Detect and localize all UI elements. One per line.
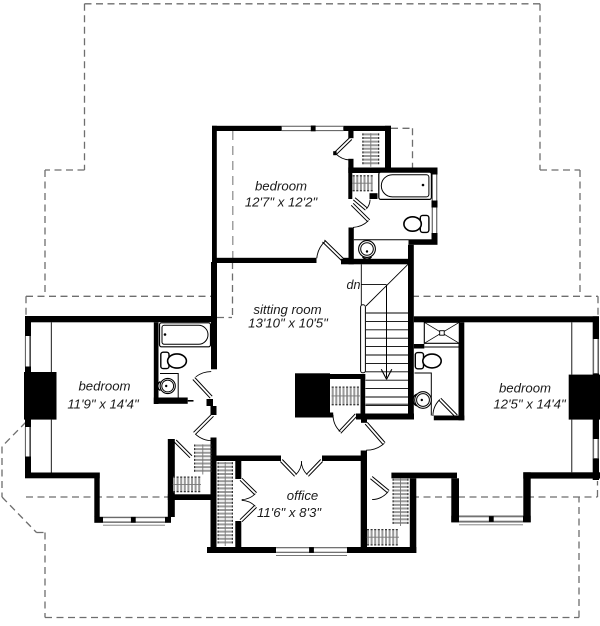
svg-text:bedroom: bedroom [78,379,130,394]
svg-text:11'9" x 14'4": 11'9" x 14'4" [67,397,140,412]
svg-text:12'5" x 14'4": 12'5" x 14'4" [493,397,567,412]
svg-text:bedroom: bedroom [499,381,551,396]
svg-text:12'7" x 12'2": 12'7" x 12'2" [245,195,319,210]
svg-text:13'10" x 10'5": 13'10" x 10'5" [248,316,329,331]
svg-text:11'6" x 8'3": 11'6" x 8'3" [257,505,322,520]
svg-text:dn: dn [347,278,361,292]
svg-text:office: office [287,488,319,503]
svg-text:bedroom: bedroom [255,179,307,194]
